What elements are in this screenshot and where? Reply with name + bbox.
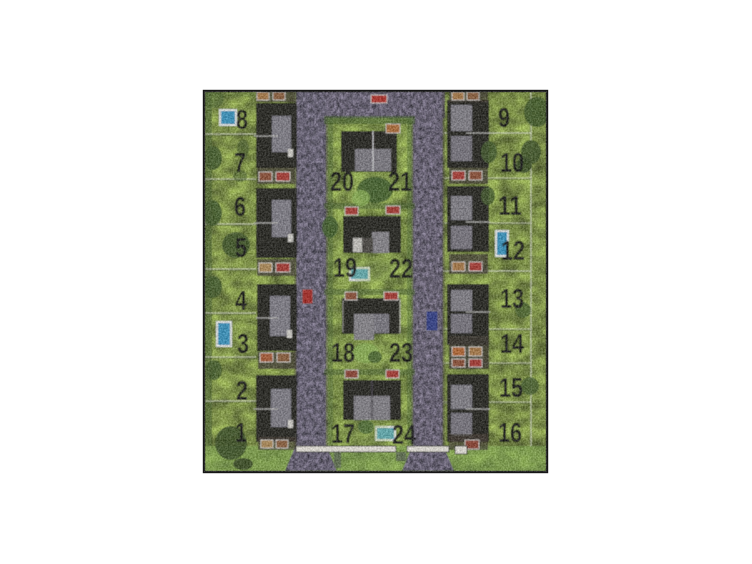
svg-text:4: 4 xyxy=(235,285,247,316)
svg-text:21: 21 xyxy=(388,166,412,197)
svg-text:19: 19 xyxy=(333,252,357,283)
svg-text:11: 11 xyxy=(498,190,522,221)
svg-text:7: 7 xyxy=(234,147,246,178)
svg-text:17: 17 xyxy=(331,418,355,449)
svg-text:6: 6 xyxy=(234,191,246,222)
svg-text:8: 8 xyxy=(236,104,248,135)
svg-text:16: 16 xyxy=(498,417,522,448)
svg-text:9: 9 xyxy=(498,102,510,133)
svg-text:5: 5 xyxy=(235,232,247,263)
svg-text:1: 1 xyxy=(235,417,247,448)
svg-text:15: 15 xyxy=(499,372,523,403)
svg-text:13: 13 xyxy=(500,283,524,314)
svg-text:2: 2 xyxy=(236,375,248,406)
svg-text:12: 12 xyxy=(501,235,525,266)
svg-text:22: 22 xyxy=(389,253,413,284)
svg-text:23: 23 xyxy=(389,337,413,368)
svg-text:20: 20 xyxy=(330,166,354,197)
svg-text:24: 24 xyxy=(392,419,416,450)
svg-text:3: 3 xyxy=(237,328,249,359)
svg-text:14: 14 xyxy=(500,328,524,359)
svg-text:10: 10 xyxy=(500,147,524,178)
svg-text:18: 18 xyxy=(331,337,355,368)
